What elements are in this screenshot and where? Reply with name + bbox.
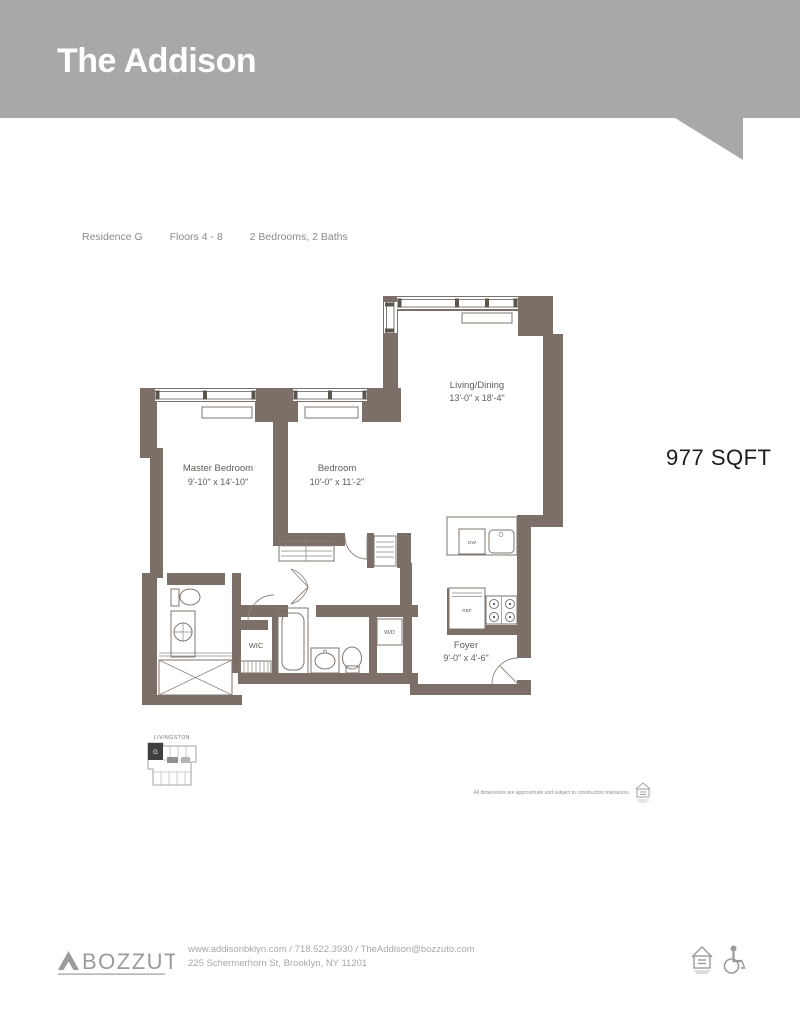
header-banner-tail xyxy=(675,118,743,160)
room-name-foyer: Foyer xyxy=(454,640,478,651)
config-label: 2 Bedrooms, 2 Baths xyxy=(250,231,348,243)
bozzuto-wordmark: BOZZUTO xyxy=(82,949,175,974)
bozzuto-logo: BOZZUTO xyxy=(55,942,175,978)
keyplan-unit-label: G xyxy=(153,750,158,756)
residence-meta: Residence G Floors 4 - 8 2 Bedrooms, 2 B… xyxy=(82,231,372,243)
page-title: The Addison xyxy=(57,42,256,81)
footer-contact: www.addisonbklyn.com / 718.522.3930 / Th… xyxy=(188,943,475,971)
room-dims-master: 9'-10" x 14'-10" xyxy=(188,477,248,487)
floors-label: Floors 4 - 8 xyxy=(170,231,223,243)
room-dims-bedroom: 10'-0" x 11'-2" xyxy=(310,477,365,487)
header-banner: The Addison xyxy=(0,0,800,118)
sqft-label: 977 SQFT xyxy=(666,445,771,471)
ref-label: REF xyxy=(462,608,472,614)
floor-plan-sheet: The Addison Residence G Floors 4 - 8 2 B… xyxy=(0,0,800,1027)
dw-label: DW xyxy=(468,540,476,546)
residence-label: Residence G xyxy=(82,231,143,243)
wic-label: WIC xyxy=(249,641,264,650)
room-name-bedroom: Bedroom xyxy=(318,463,357,474)
washer-dryer: W/D xyxy=(377,619,402,645)
keyplan-street-label: LIVINGSTON xyxy=(154,735,190,741)
master-bath-fixtures xyxy=(159,589,232,695)
contact-line2: 225 Schermerhorn St, Brooklyn, NY 11201 xyxy=(188,957,475,971)
equal-housing-small-icon xyxy=(636,783,650,802)
contact-line1: www.addisonbklyn.com / 718.522.3930 / Th… xyxy=(188,943,475,957)
wd-label: W/D xyxy=(384,630,395,636)
disclaimer-group: All dimensions are approximate and subje… xyxy=(474,783,650,802)
toilet-icon xyxy=(171,589,179,606)
equal-housing-icon xyxy=(692,947,712,973)
counter-icon xyxy=(447,517,517,555)
walls xyxy=(140,296,563,705)
keyplan: LIVINGSTON G xyxy=(148,735,196,785)
room-dims-foyer: 9'-0" x 4'-6" xyxy=(443,653,488,663)
kitchen-fixtures: DW REF xyxy=(447,517,517,629)
footer-icons xyxy=(686,940,756,978)
room-name-master: Master Bedroom xyxy=(183,463,253,474)
disclaimer-text: All dimensions are approximate and subje… xyxy=(474,790,630,796)
room-name-living: Living/Dining xyxy=(450,380,504,391)
bath2-fixtures xyxy=(278,608,362,674)
floor-plan: W/D DW REF Living/Dining xyxy=(130,280,670,810)
room-dims-living: 13'-0" x 18'-4" xyxy=(449,393,504,403)
accessibility-icon xyxy=(725,946,745,974)
